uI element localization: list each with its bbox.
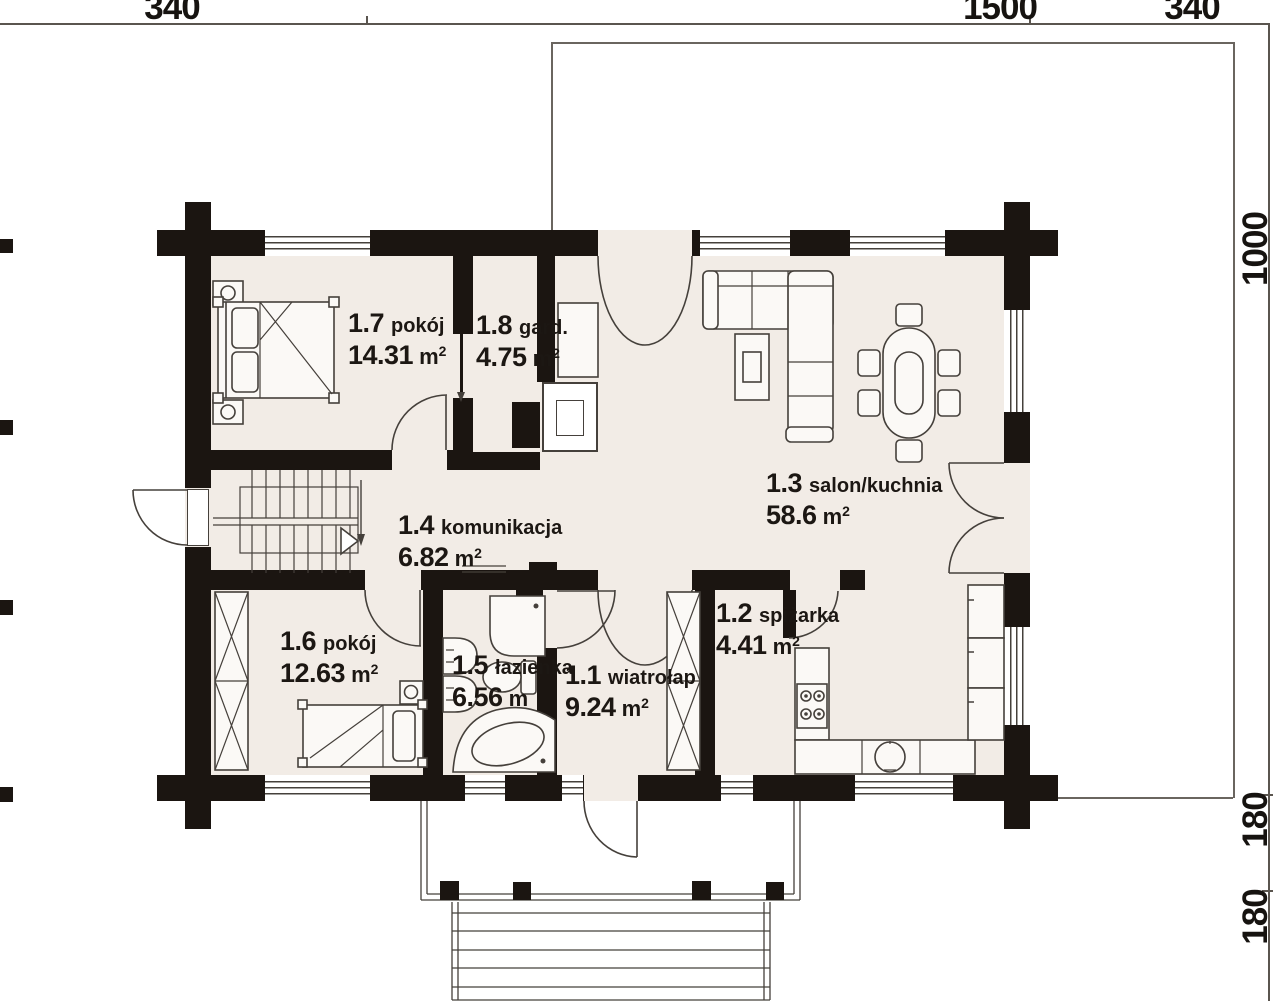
room-label-1-1: 1.1wiatrołap 9.24m2 [565, 660, 696, 724]
bathroom-door-arc [557, 590, 615, 648]
wardrobe [215, 592, 248, 770]
chair [938, 390, 960, 416]
room-label-1-8: 1.8gard. 4.75m2 [476, 310, 568, 374]
porch-post [692, 881, 711, 900]
right-door-arc [949, 463, 1004, 518]
bedroom17-door-arc [392, 395, 447, 450]
hall-door-arc [598, 590, 645, 665]
staircase [213, 470, 365, 573]
room-label-1-7: 1.7pokój 14.31m2 [348, 308, 446, 372]
dim-right-180b: 180 [1239, 867, 1273, 967]
room-label-1-4: 1.4komunikacja 6.82m2 [398, 510, 562, 574]
right-door-arc [949, 518, 1004, 573]
dim-top-left: 340 [122, 0, 222, 25]
double-bed [213, 281, 339, 424]
terrace-door-arc [645, 256, 692, 345]
chair [858, 350, 880, 376]
dim-top-mid: 1500 [950, 0, 1050, 25]
armrest [703, 271, 718, 329]
furniture-layer [0, 0, 1280, 1001]
room-label-1-3: 1.3salon/kuchnia 58.6m2 [766, 468, 942, 532]
dim-right-180a: 180 [1239, 770, 1273, 870]
porch [421, 801, 800, 1000]
bathtub [453, 708, 555, 772]
chair [896, 304, 922, 326]
room-label-1-5: 1.5łazienka 6.56m [452, 650, 573, 714]
room-label-1-2: 1.2spiżarka 4.41m2 [716, 598, 839, 662]
left-door-arc [133, 490, 187, 545]
terrace-door-arc [598, 256, 645, 345]
dim-right-1000: 1000 [1239, 199, 1273, 299]
dim-top-right: 340 [1142, 0, 1242, 25]
armrest [786, 427, 833, 442]
chair [938, 350, 960, 376]
chair [896, 440, 922, 462]
chair [858, 390, 880, 416]
coffee-table [735, 334, 769, 400]
single-bed [298, 681, 427, 767]
porch-steps [452, 902, 770, 1000]
floor-plan: 340 1500 340 1000 180 180 [0, 0, 1280, 1001]
stove [797, 684, 827, 728]
porch-post [766, 882, 784, 900]
dining-table [883, 328, 935, 438]
entry-door-arc [584, 801, 637, 857]
porch-post [513, 882, 531, 900]
room-label-1-6: 1.6pokój 12.63m2 [280, 626, 378, 690]
dining-set [858, 304, 960, 462]
sliding-door-arrow [457, 392, 465, 402]
porch-post [440, 881, 459, 900]
